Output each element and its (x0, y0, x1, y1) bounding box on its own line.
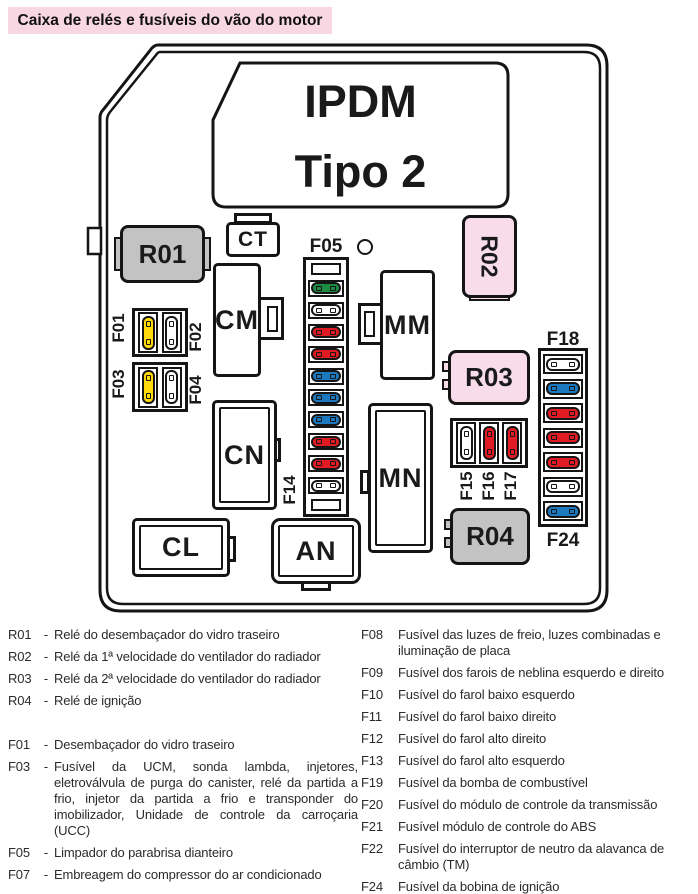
legend-code: F03 (8, 759, 38, 839)
legend-separator: - (38, 845, 54, 861)
fuse-window (316, 417, 322, 422)
connector-cm-bump-detail (267, 306, 278, 332)
legend-text: Fusível do farol alto esquerdo (398, 753, 698, 769)
legend-text: Fusível da UCM, sonda lambda, injetores,… (54, 759, 358, 839)
fuse-cell (308, 477, 344, 494)
legend-item: F08Fusível das luzes de freio, luzes com… (361, 627, 698, 659)
fuse-blue (546, 382, 580, 395)
fuse-window (316, 286, 322, 291)
legend-code: R01 (8, 627, 38, 643)
legend-text: Relé do desembaçador do vidro traseiro (54, 627, 358, 643)
fuse-window (330, 483, 336, 488)
fuse-red (546, 431, 580, 444)
legend-item: F19Fusível da bomba de combustível (361, 775, 698, 791)
legend-item: F05-Limpador do parabrisa dianteiro (8, 845, 358, 861)
fuse-cell (308, 389, 344, 406)
fuse-cell (308, 368, 344, 385)
fuse-box-f15-f17 (450, 418, 528, 468)
fuse-white (546, 358, 580, 371)
fuse-window (551, 509, 557, 514)
empty-fuse-slot (311, 263, 341, 275)
fuse-cell (456, 422, 476, 464)
legend-item: F12Fusível do farol alto direito (361, 731, 698, 747)
connector-cn: CN (212, 400, 277, 510)
fuse-window (569, 460, 575, 465)
legend-item: F11Fusível do farol baixo direito (361, 709, 698, 725)
fuse-red (311, 326, 341, 338)
fuse-window (316, 308, 322, 313)
legend-text: Fusível do interruptor de neutro da alav… (398, 841, 698, 873)
fuse-window (169, 339, 174, 345)
legend-text: Fusível dos farois de neblina esquerdo e… (398, 665, 698, 681)
fuse-white (311, 304, 341, 316)
fuse-label-f03: F03 (111, 364, 127, 404)
legend-code: F20 (361, 797, 398, 813)
legend-code: F19 (361, 775, 398, 791)
fuse-red (546, 407, 580, 420)
relay-r04: R04 (450, 508, 530, 565)
legend-text: Fusível da bomba de combustível (398, 775, 698, 791)
legend-text: Relé da 2ª velocidade do ventilador do r… (54, 671, 358, 687)
fuse-cell (308, 280, 344, 297)
legend-text: Fusível do módulo de controle da transmi… (398, 797, 698, 813)
fuse-window (169, 393, 174, 399)
relay-r02: R02 (462, 215, 517, 298)
connector-mn-label: MN (371, 406, 430, 550)
legend-text: Relé da 1ª velocidade do ventilador do r… (54, 649, 358, 665)
connector-cn-label: CN (215, 403, 274, 507)
fuse-label-f15: F15 (459, 466, 475, 506)
fuse-window (146, 321, 151, 327)
relay-r02-label: R02 (476, 235, 503, 277)
fuse-red (311, 436, 341, 448)
legend-text: Fusível do farol alto direito (398, 731, 698, 747)
relay-r03-label: R03 (465, 362, 513, 393)
fuse-label-f24: F24 (538, 530, 588, 552)
fuse-white (311, 480, 341, 492)
connector-ct: CT (226, 222, 280, 257)
legend-item: R02-Relé da 1ª velocidade do ventilador … (8, 649, 358, 665)
relay-r01: R01 (120, 225, 205, 283)
connector-mn: MN (368, 403, 433, 553)
fuse-label-f16: F16 (481, 466, 497, 506)
fuse-white (165, 370, 178, 404)
legend-code: F07 (8, 867, 38, 883)
fuse-window (330, 352, 336, 357)
legend-code: F12 (361, 731, 398, 747)
fuse-cell (308, 324, 344, 341)
legend-text: Fusível das luzes de freio, luzes combin… (398, 627, 698, 659)
legend-item: F20Fusível do módulo de controle da tran… (361, 797, 698, 813)
legend-left-column: R01-Relé do desembaçador do vidro trasei… (8, 627, 358, 889)
fuse-column-f18-f24 (538, 348, 588, 527)
legend-item: F13Fusível do farol alto esquerdo (361, 753, 698, 769)
legend-item: F10Fusível do farol baixo esquerdo (361, 687, 698, 703)
legend-item: R04-Relé de ignição (8, 693, 358, 709)
fuse-window (316, 330, 322, 335)
legend-item: R03-Relé da 2ª velocidade do ventilador … (8, 671, 358, 687)
fuse-red (483, 426, 496, 460)
fuse-window (169, 375, 174, 381)
connector-an: AN (271, 518, 361, 584)
fuse-window (316, 461, 322, 466)
fuse-window (330, 374, 336, 379)
fuse-window (569, 386, 575, 391)
relay-r01-label: R01 (139, 239, 187, 270)
legend-code: F24 (361, 879, 398, 894)
legend-text: Desembaçador do vidro traseiro (54, 737, 358, 753)
ipdm-title-line2: Tipo 2 (295, 149, 427, 194)
connector-mm-bump-detail (364, 311, 375, 337)
fuse-label-f04: F04 (188, 370, 204, 410)
fuse-cell (308, 302, 344, 319)
legend-code: F22 (361, 841, 398, 873)
fuse-window (487, 431, 492, 437)
page: Caixa de relés e fusíveis do vão do moto… (0, 0, 698, 894)
fuse-window (316, 439, 322, 444)
legend-code: F13 (361, 753, 398, 769)
fuse-blue (546, 505, 580, 518)
fuse-window (569, 411, 575, 416)
fuse-window (551, 362, 557, 367)
connector-an-label: AN (274, 521, 358, 581)
fuse-window (551, 435, 557, 440)
legend-text: Fusível do farol baixo direito (398, 709, 698, 725)
legend-code: F05 (8, 845, 38, 861)
connector-cl-label: CL (135, 521, 227, 574)
fuse-window (551, 411, 557, 416)
fuse-cell (308, 455, 344, 472)
fuse-window (569, 509, 575, 514)
fuse-cell (162, 312, 182, 353)
fuse-window (551, 484, 557, 489)
legend-item: F21Fusível módulo de controle do ABS (361, 819, 698, 835)
connector-ct-label: CT (229, 225, 277, 254)
fuse-white (546, 480, 580, 493)
fuse-blue (311, 370, 341, 382)
fuse-window (330, 286, 336, 291)
legend-separator: - (38, 671, 54, 687)
fuse-red (506, 426, 519, 460)
legend-item: F03-Fusível da UCM, sonda lambda, injeto… (8, 759, 358, 839)
fusebox-diagram: IPDM Tipo 2 R01 CT CM MM R02 (0, 0, 698, 625)
side-mount-tab (88, 228, 101, 254)
fuse-cell (543, 354, 583, 374)
fuse-white (460, 426, 473, 460)
fuse-label-f14: F14 (282, 470, 298, 510)
fuse-window (316, 483, 322, 488)
fuse-cell (543, 379, 583, 399)
legend-text: Limpador do parabrisa dianteiro (54, 845, 358, 861)
legend-separator: - (38, 627, 54, 643)
legend-text: Fusível módulo de controle do ABS (398, 819, 698, 835)
legend-code: R03 (8, 671, 38, 687)
legend-code: F09 (361, 665, 398, 681)
fuse-window (146, 339, 151, 345)
fuse-red (311, 458, 341, 470)
legend-code: F11 (361, 709, 398, 725)
alignment-hole (357, 239, 373, 255)
legend-text: Embreagem do compressor do ar condiciona… (54, 867, 358, 883)
connector-cl: CL (132, 518, 230, 577)
legend-separator: - (38, 759, 54, 839)
connector-cm-label: CM (216, 266, 258, 374)
fuse-white (165, 316, 178, 350)
fuse-window (330, 395, 336, 400)
connector-cm: CM (213, 263, 261, 377)
legend-item: F24Fusível da bobina de ignição (361, 879, 698, 894)
fuse-cell (543, 428, 583, 448)
legend-separator: - (38, 867, 54, 883)
legend-code: F21 (361, 819, 398, 835)
ipdm-title-line1: IPDM (304, 79, 417, 124)
fuse-red (311, 348, 341, 360)
fuse-window (464, 431, 469, 437)
fuse-window (551, 460, 557, 465)
fuse-box-f03-f04 (132, 362, 188, 412)
fuse-window (510, 449, 515, 455)
fuse-yellow (142, 370, 155, 404)
fuse-window (146, 393, 151, 399)
fuse-window (330, 439, 336, 444)
fuse-label-f02: F02 (188, 317, 204, 357)
fuse-cell (138, 312, 158, 353)
legend-code: R04 (8, 693, 38, 709)
fuse-label-f17: F17 (503, 466, 519, 506)
fuse-cell (543, 501, 583, 521)
legend-text: Fusível da bobina de ignição (398, 879, 698, 894)
fuse-window (569, 362, 575, 367)
fuse-window (569, 435, 575, 440)
fuse-window (569, 484, 575, 489)
fuse-label-f05: F05 (303, 236, 349, 258)
fuse-window (169, 321, 174, 327)
legend-separator: - (38, 649, 54, 665)
fuse-column-f05-f14 (303, 257, 349, 517)
fuse-window (316, 352, 322, 357)
fuse-window (330, 461, 336, 466)
connector-mm: MM (380, 270, 435, 380)
fuse-window (464, 449, 469, 455)
legend-item: F09Fusível dos farois de neblina esquerd… (361, 665, 698, 681)
fuse-window (146, 375, 151, 381)
relay-r04-label: R04 (466, 521, 514, 552)
fuse-cell (308, 346, 344, 363)
legend-code: F10 (361, 687, 398, 703)
fuse-box-f01-f02 (132, 308, 188, 357)
fuse-window (330, 330, 336, 335)
fuse-window (551, 386, 557, 391)
legend-item: R01-Relé do desembaçador do vidro trasei… (8, 627, 358, 643)
fuse-cell (543, 403, 583, 423)
legend-separator: - (38, 693, 54, 709)
legend-item: F07-Embreagem do compressor do ar condic… (8, 867, 358, 883)
legend-text: Relé de ignição (54, 693, 358, 709)
fuse-cell (479, 422, 499, 464)
legend-code: F01 (8, 737, 38, 753)
fuse-blue (311, 414, 341, 426)
legend-right-column: F08Fusível das luzes de freio, luzes com… (361, 627, 698, 894)
fuse-cell (162, 367, 182, 408)
legend-item: F01-Desembaçador do vidro traseiro (8, 737, 358, 753)
fuse-cell (543, 477, 583, 497)
empty-fuse-slot (311, 499, 341, 511)
fuse-cell (502, 422, 522, 464)
legend-separator: - (38, 737, 54, 753)
legend-code: F08 (361, 627, 398, 659)
legend-code: R02 (8, 649, 38, 665)
fuse-cell (138, 367, 158, 408)
fuse-cell (308, 411, 344, 428)
fuse-window (487, 449, 492, 455)
connector-mm-label: MM (383, 273, 432, 377)
relay-r03: R03 (448, 350, 530, 405)
fuse-window (330, 308, 336, 313)
fuse-yellow (142, 316, 155, 350)
fuse-window (510, 431, 515, 437)
fuse-window (316, 395, 322, 400)
ipdm-title: IPDM Tipo 2 (213, 66, 508, 206)
fuse-cell (308, 433, 344, 450)
legend-text: Fusível do farol baixo esquerdo (398, 687, 698, 703)
fuse-window (316, 374, 322, 379)
fuse-window (330, 417, 336, 422)
fuse-green (311, 282, 341, 294)
fuse-blue (311, 392, 341, 404)
fuse-label-f01: F01 (111, 308, 127, 348)
legend-item: F22Fusível do interruptor de neutro da a… (361, 841, 698, 873)
fuse-cell (543, 452, 583, 472)
fuse-red (546, 456, 580, 469)
